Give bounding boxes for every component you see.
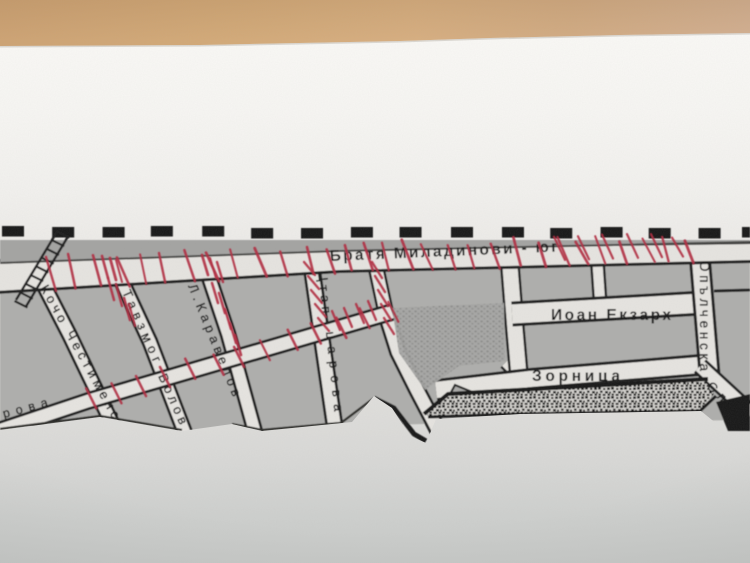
svg-text:Зорница: Зорница (532, 368, 620, 385)
svg-text:Иоан Екзарх: Иоан Екзарх (551, 307, 671, 324)
svg-text:Опълченска: Опълченска (697, 261, 712, 371)
